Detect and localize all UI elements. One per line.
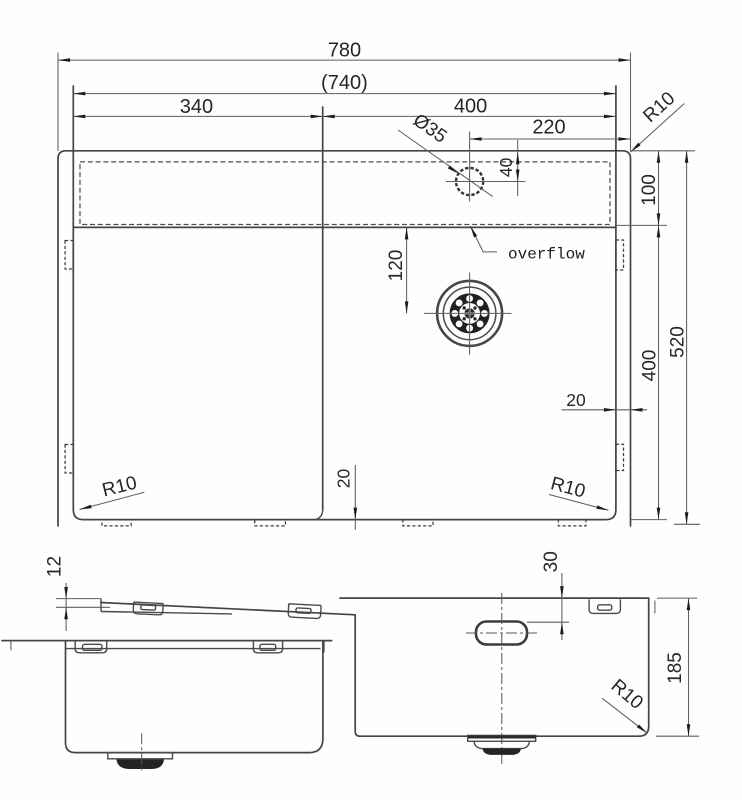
svg-text:340: 340 [180,96,213,118]
svg-text:R10: R10 [100,473,139,502]
svg-text:400: 400 [454,96,487,118]
svg-text:400: 400 [640,350,661,382]
svg-text:780: 780 [328,40,361,62]
svg-text:overflow: overflow [508,246,585,264]
svg-text:120: 120 [386,250,407,282]
svg-text:20: 20 [566,390,586,410]
svg-text:30: 30 [541,551,562,572]
svg-text:12: 12 [45,556,66,577]
svg-text:520: 520 [668,326,689,358]
svg-text:(740): (740) [321,72,368,94]
svg-text:R10: R10 [548,473,587,502]
svg-text:R10: R10 [607,675,647,713]
svg-text:R10: R10 [639,88,679,127]
svg-text:185: 185 [665,652,686,684]
svg-text:220: 220 [532,117,565,139]
svg-text:100: 100 [639,174,660,206]
svg-text:20: 20 [334,469,354,489]
svg-text:40: 40 [496,157,516,177]
